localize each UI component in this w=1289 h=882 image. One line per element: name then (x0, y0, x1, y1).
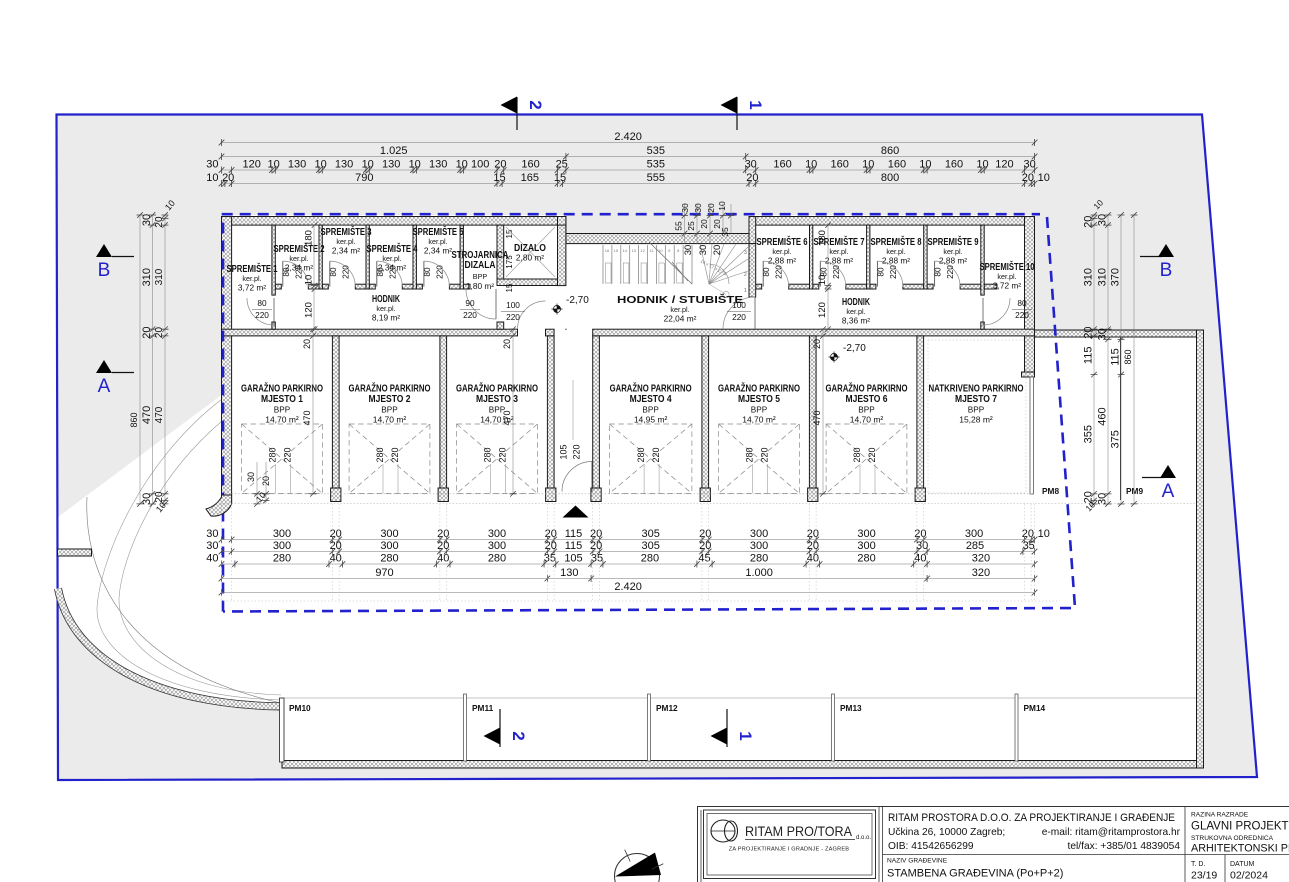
svg-text:285: 285 (966, 540, 984, 552)
svg-text:40: 40 (206, 553, 218, 565)
svg-text:14,70 m²: 14,70 m² (742, 415, 776, 425)
svg-text:115: 115 (1110, 348, 1122, 366)
svg-text:20: 20 (1083, 216, 1095, 228)
svg-text:220: 220 (283, 447, 293, 462)
svg-text:23/19: 23/19 (1191, 870, 1217, 882)
svg-text:3,72 m²: 3,72 m² (238, 283, 266, 293)
svg-text:GARAŽNO PARKIRNO: GARAŽNO PARKIRNO (826, 382, 908, 395)
svg-text:d.o.o.: d.o.o. (856, 835, 871, 841)
svg-text:14: 14 (623, 248, 628, 253)
svg-text:20: 20 (1022, 172, 1034, 184)
svg-text:80: 80 (328, 267, 338, 277)
svg-text:30: 30 (206, 540, 218, 552)
svg-text:220: 220 (434, 265, 444, 279)
svg-text:80: 80 (257, 298, 267, 308)
svg-text:120: 120 (995, 159, 1013, 171)
svg-text:STRUKOVNA ODREDNICA: STRUKOVNA ODREDNICA (1191, 835, 1274, 842)
svg-text:GLAVNI PROJEKT: GLAVNI PROJEKT (1191, 821, 1289, 833)
svg-text:220: 220 (945, 265, 955, 279)
svg-text:3: 3 (744, 250, 747, 256)
svg-text:-2,70: -2,70 (566, 295, 589, 306)
svg-text:20: 20 (699, 219, 709, 229)
svg-text:310: 310 (154, 268, 165, 285)
svg-text:RAZINA RAZRADE: RAZINA RAZRADE (1191, 812, 1249, 819)
svg-text:GARAŽNO PARKIRNO: GARAŽNO PARKIRNO (610, 382, 692, 395)
svg-text:25: 25 (686, 221, 696, 231)
svg-text:PM10: PM10 (289, 703, 311, 713)
svg-text:10: 10 (456, 159, 468, 171)
svg-text:20: 20 (807, 528, 819, 540)
svg-text:10: 10 (976, 159, 988, 171)
svg-text:2: 2 (526, 100, 545, 109)
svg-text:280: 280 (852, 447, 862, 462)
svg-text:20: 20 (545, 540, 557, 552)
svg-text:130: 130 (560, 567, 578, 579)
svg-text:470: 470 (812, 410, 822, 425)
svg-text:80: 80 (422, 267, 432, 277)
svg-text:OIB: 41542656299: OIB: 41542656299 (888, 841, 974, 852)
svg-text:30: 30 (1023, 159, 1035, 171)
svg-text:20: 20 (699, 528, 711, 540)
svg-text:15: 15 (505, 283, 514, 292)
svg-text:10: 10 (1038, 172, 1050, 184)
svg-text:RITAM PRO/TORA: RITAM PRO/TORA (745, 823, 853, 839)
svg-text:120: 120 (304, 302, 315, 318)
svg-text:2,88 m²: 2,88 m² (768, 256, 796, 266)
svg-text:3,72 m²: 3,72 m² (993, 281, 1021, 291)
svg-text:160: 160 (521, 159, 539, 171)
svg-text:280: 280 (380, 553, 398, 565)
svg-text:BPP: BPP (642, 406, 659, 415)
svg-text:470: 470 (502, 410, 512, 425)
svg-text:375: 375 (1110, 430, 1122, 448)
svg-text:20: 20 (706, 203, 716, 213)
svg-text:10: 10 (314, 159, 326, 171)
svg-text:GARAŽNO PARKIRNO: GARAŽNO PARKIRNO (456, 382, 538, 395)
svg-text:105: 105 (559, 444, 569, 459)
svg-text:BPP: BPP (473, 272, 488, 281)
svg-text:DATUM: DATUM (1230, 861, 1255, 868)
svg-text:10: 10 (805, 159, 817, 171)
svg-text:160: 160 (888, 159, 906, 171)
svg-text:2: 2 (509, 731, 528, 740)
svg-text:DIZALA: DIZALA (465, 260, 496, 271)
svg-text:300: 300 (273, 540, 291, 552)
svg-text:20: 20 (222, 172, 234, 184)
svg-text:310: 310 (1097, 268, 1109, 286)
svg-text:280: 280 (857, 553, 875, 565)
svg-text:A: A (98, 376, 111, 397)
svg-text:30: 30 (246, 472, 256, 482)
svg-text:-2,70: -2,70 (843, 343, 866, 354)
svg-text:RITAM PROSTORA D.O.O. ZA PROJE: RITAM PROSTORA D.O.O. ZA PROJEKTIRANJE I… (888, 812, 1175, 824)
svg-text:280: 280 (273, 553, 291, 565)
svg-text:Učkina 26, 10000 Zagreb;: Učkina 26, 10000 Zagreb; (888, 827, 1005, 838)
svg-text:280: 280 (375, 447, 385, 462)
svg-text:20: 20 (437, 540, 449, 552)
svg-text:80: 80 (761, 267, 771, 277)
svg-text:8,36 m²: 8,36 m² (842, 316, 870, 326)
svg-text:220: 220 (390, 447, 400, 462)
svg-text:20: 20 (812, 339, 822, 349)
svg-text:310: 310 (1083, 268, 1095, 286)
svg-text:160: 160 (945, 159, 963, 171)
svg-text:1: 1 (744, 288, 747, 294)
svg-text:BPP: BPP (858, 406, 875, 415)
svg-text:305: 305 (642, 528, 660, 540)
svg-text:300: 300 (750, 528, 768, 540)
svg-text:10: 10 (862, 159, 874, 171)
svg-text:PM8: PM8 (1042, 486, 1059, 496)
svg-text:10: 10 (817, 275, 828, 286)
svg-text:MJESTO 6: MJESTO 6 (846, 394, 888, 405)
svg-text:10: 10 (362, 159, 374, 171)
svg-text:30: 30 (1097, 328, 1109, 340)
svg-text:MJESTO 3: MJESTO 3 (476, 394, 518, 405)
svg-text:100: 100 (471, 159, 489, 171)
svg-text:22,04 m²: 22,04 m² (664, 314, 697, 324)
svg-text:220: 220 (463, 310, 477, 320)
svg-text:970: 970 (375, 567, 393, 579)
svg-text:220: 220 (498, 447, 508, 462)
svg-text:A: A (1162, 481, 1175, 502)
svg-text:10: 10 (717, 201, 727, 211)
svg-text:20: 20 (154, 216, 165, 228)
svg-text:300: 300 (273, 528, 291, 540)
svg-text:8,19 m²: 8,19 m² (372, 313, 400, 323)
svg-text:535: 535 (647, 159, 665, 171)
svg-text:20: 20 (712, 245, 723, 256)
svg-text:130: 130 (382, 159, 400, 171)
svg-text:e-mail: ritam@ritamprostora.hr: e-mail: ritam@ritamprostora.hr (1042, 827, 1181, 838)
svg-text:1: 1 (746, 100, 765, 109)
svg-text:160: 160 (773, 159, 791, 171)
svg-text:PM14: PM14 (1024, 703, 1046, 713)
svg-text:310: 310 (141, 268, 153, 286)
svg-text:2,80 m²: 2,80 m² (516, 253, 544, 263)
svg-text:PM9: PM9 (1126, 486, 1143, 496)
svg-text:470: 470 (154, 406, 165, 423)
svg-text:PM11: PM11 (472, 703, 494, 713)
svg-text:15: 15 (614, 248, 619, 253)
svg-text:PM12: PM12 (656, 703, 678, 713)
svg-text:MJESTO 5: MJESTO 5 (738, 394, 780, 405)
svg-text:130: 130 (335, 159, 353, 171)
svg-text:160: 160 (831, 159, 849, 171)
svg-text:NATKRIVENO PARKIRNO: NATKRIVENO PARKIRNO (929, 384, 1024, 395)
svg-text:1: 1 (736, 731, 755, 740)
svg-text:B: B (98, 260, 111, 281)
svg-text:20: 20 (141, 326, 153, 338)
svg-text:20: 20 (302, 339, 312, 349)
svg-text:1.000: 1.000 (745, 567, 773, 579)
svg-text:280: 280 (750, 553, 768, 565)
svg-text:30: 30 (141, 214, 153, 226)
svg-text:470: 470 (302, 410, 312, 425)
svg-text:20: 20 (330, 540, 342, 552)
svg-text:30: 30 (1097, 493, 1109, 505)
svg-text:2,34 m²: 2,34 m² (378, 263, 406, 273)
svg-text:GARAŽNO PARKIRNO: GARAŽNO PARKIRNO (718, 382, 800, 395)
svg-text:220: 220 (760, 447, 770, 462)
svg-text:13: 13 (631, 248, 636, 253)
svg-text:GARAŽNO PARKIRNO: GARAŽNO PARKIRNO (349, 382, 431, 395)
svg-text:860: 860 (129, 412, 139, 427)
svg-text:180: 180 (817, 230, 828, 246)
svg-text:30: 30 (1097, 214, 1109, 226)
svg-text:BPP: BPP (751, 406, 768, 415)
svg-text:30: 30 (916, 540, 928, 552)
svg-text:30: 30 (683, 245, 694, 256)
svg-text:165: 165 (521, 172, 539, 184)
svg-text:MJESTO 1: MJESTO 1 (261, 394, 303, 405)
svg-text:20: 20 (261, 476, 271, 486)
svg-text:370: 370 (1110, 268, 1122, 286)
svg-text:10: 10 (409, 159, 421, 171)
svg-text:220: 220 (506, 312, 520, 322)
svg-text:115: 115 (1083, 347, 1095, 365)
svg-text:14,95 m²: 14,95 m² (634, 415, 668, 425)
svg-text:10: 10 (206, 172, 218, 184)
svg-text:20: 20 (746, 172, 758, 184)
svg-text:220: 220 (651, 447, 661, 462)
svg-text:790: 790 (355, 172, 373, 184)
svg-text:470: 470 (141, 406, 153, 424)
svg-text:220: 220 (867, 447, 877, 462)
svg-text:100: 100 (506, 300, 520, 310)
svg-text:300: 300 (488, 540, 506, 552)
svg-text:20: 20 (545, 528, 557, 540)
svg-text:20: 20 (502, 339, 512, 349)
svg-text:280: 280 (636, 447, 646, 462)
svg-text:10: 10 (267, 159, 279, 171)
svg-text:130: 130 (288, 159, 306, 171)
svg-text:10: 10 (304, 275, 315, 286)
svg-text:12: 12 (640, 248, 645, 253)
svg-text:180: 180 (304, 230, 315, 246)
svg-text:280: 280 (745, 447, 755, 462)
svg-text:320: 320 (972, 567, 990, 579)
svg-text:300: 300 (857, 540, 875, 552)
svg-text:300: 300 (750, 540, 768, 552)
svg-text:20: 20 (1022, 528, 1034, 540)
svg-text:10: 10 (919, 159, 931, 171)
svg-text:BPP: BPP (274, 406, 291, 415)
svg-text:460: 460 (1097, 407, 1109, 425)
svg-text:MJESTO 7: MJESTO 7 (955, 394, 997, 405)
svg-text:220: 220 (340, 265, 350, 279)
svg-text:20: 20 (590, 540, 602, 552)
svg-text:320: 320 (972, 553, 990, 565)
svg-text:280: 280 (268, 447, 278, 462)
svg-text:tel/fax: +385/01 4839054: tel/fax: +385/01 4839054 (1068, 841, 1181, 852)
svg-text:860: 860 (1123, 349, 1133, 364)
svg-text:105: 105 (564, 553, 582, 565)
svg-text:T. D.: T. D. (1191, 861, 1205, 868)
svg-text:220: 220 (255, 310, 269, 320)
svg-text:55: 55 (674, 221, 684, 231)
svg-text:2,34 m²: 2,34 m² (285, 263, 313, 273)
svg-text:280: 280 (483, 447, 493, 462)
svg-text:2,88 m²: 2,88 m² (825, 256, 853, 266)
svg-text:2,34 m²: 2,34 m² (332, 246, 360, 256)
svg-text:2: 2 (744, 272, 747, 278)
svg-text:20: 20 (154, 327, 165, 339)
svg-text:220: 220 (888, 265, 898, 279)
svg-text:14,70 m²: 14,70 m² (373, 415, 407, 425)
svg-text:30: 30 (206, 528, 218, 540)
svg-text:2,88 m²: 2,88 m² (939, 256, 967, 266)
svg-text:20: 20 (437, 528, 449, 540)
svg-text:40: 40 (914, 553, 926, 565)
svg-text:40: 40 (437, 553, 449, 565)
svg-text:2.420: 2.420 (614, 131, 642, 143)
svg-text:30: 30 (745, 159, 757, 171)
svg-text:02/2024: 02/2024 (1230, 870, 1268, 882)
svg-text:B: B (1160, 260, 1173, 281)
svg-text:20: 20 (494, 159, 506, 171)
svg-text:1.025: 1.025 (380, 145, 408, 157)
svg-text:2,88 m²: 2,88 m² (882, 256, 910, 266)
svg-text:115: 115 (565, 528, 583, 540)
svg-text:300: 300 (380, 540, 398, 552)
svg-text:80: 80 (875, 267, 885, 277)
svg-text:16: 16 (605, 248, 610, 253)
svg-text:300: 300 (488, 528, 506, 540)
svg-text:MJESTO 4: MJESTO 4 (630, 394, 672, 405)
svg-text:14,70 m²: 14,70 m² (265, 415, 299, 425)
svg-text:280: 280 (488, 553, 506, 565)
svg-text:STAMBENA GRAĐEVINA (Po+P+2): STAMBENA GRAĐEVINA (Po+P+2) (887, 868, 1063, 880)
svg-text:30: 30 (693, 203, 703, 213)
svg-text:220: 220 (774, 265, 784, 279)
svg-text:2.420: 2.420 (614, 581, 642, 593)
svg-text:40: 40 (807, 553, 819, 565)
svg-text:40: 40 (330, 553, 342, 565)
svg-text:220: 220 (732, 312, 746, 322)
svg-text:300: 300 (380, 528, 398, 540)
svg-text:GARAŽNO PARKIRNO: GARAŽNO PARKIRNO (241, 382, 323, 395)
svg-text:30: 30 (206, 159, 218, 171)
svg-text:30: 30 (680, 203, 690, 213)
svg-text:30: 30 (141, 493, 153, 505)
svg-text:15: 15 (554, 172, 566, 184)
svg-text:860: 860 (881, 145, 899, 157)
svg-text:ZA PROJEKTIRANJE I GRADNJE: ZA PROJEKTIRANJE I GRADNJE - ZAGREB (729, 847, 850, 853)
svg-text:20: 20 (330, 528, 342, 540)
svg-text:220: 220 (572, 444, 582, 459)
svg-text:2,34 m²: 2,34 m² (424, 246, 452, 256)
svg-text:15,28 m²: 15,28 m² (959, 415, 993, 425)
svg-text:20: 20 (807, 540, 819, 552)
svg-text:30: 30 (698, 245, 709, 256)
svg-text:20: 20 (699, 540, 711, 552)
svg-text:15: 15 (493, 172, 505, 184)
svg-text:ARHITEKTONSKI PROJEKT: ARHITEKTONSKI PROJEKT (1191, 843, 1289, 855)
svg-text:20: 20 (590, 528, 602, 540)
svg-text:14,70 m²: 14,70 m² (850, 415, 884, 425)
svg-text:BPP: BPP (968, 406, 985, 415)
svg-text:220: 220 (831, 265, 841, 279)
svg-text:120: 120 (243, 159, 261, 171)
svg-text:20: 20 (914, 528, 926, 540)
svg-text:220: 220 (1015, 310, 1029, 320)
svg-text:80: 80 (1017, 298, 1027, 308)
svg-text:300: 300 (857, 528, 875, 540)
svg-text:355: 355 (1083, 425, 1095, 443)
svg-text:300: 300 (965, 528, 983, 540)
svg-text:MJESTO 2: MJESTO 2 (369, 394, 411, 405)
svg-text:25: 25 (556, 159, 568, 171)
svg-text:PM13: PM13 (840, 703, 862, 713)
svg-text:305: 305 (642, 540, 660, 552)
svg-text:280: 280 (641, 553, 659, 565)
svg-text:80: 80 (933, 267, 943, 277)
svg-text:120: 120 (817, 302, 828, 318)
svg-text:130: 130 (429, 159, 447, 171)
svg-text:35: 35 (720, 227, 730, 237)
svg-text:NAZIV GRAĐEVINE: NAZIV GRAĐEVINE (887, 858, 948, 865)
svg-text:BPP: BPP (381, 406, 398, 415)
svg-text:115: 115 (565, 540, 583, 552)
svg-text:1,80 m²: 1,80 m² (466, 281, 494, 291)
svg-text:535: 535 (647, 145, 665, 157)
svg-text:20: 20 (1083, 326, 1095, 338)
svg-text:90: 90 (465, 298, 475, 308)
svg-text:10: 10 (1038, 528, 1050, 540)
svg-text:555: 555 (647, 172, 665, 184)
svg-text:800: 800 (881, 172, 899, 184)
